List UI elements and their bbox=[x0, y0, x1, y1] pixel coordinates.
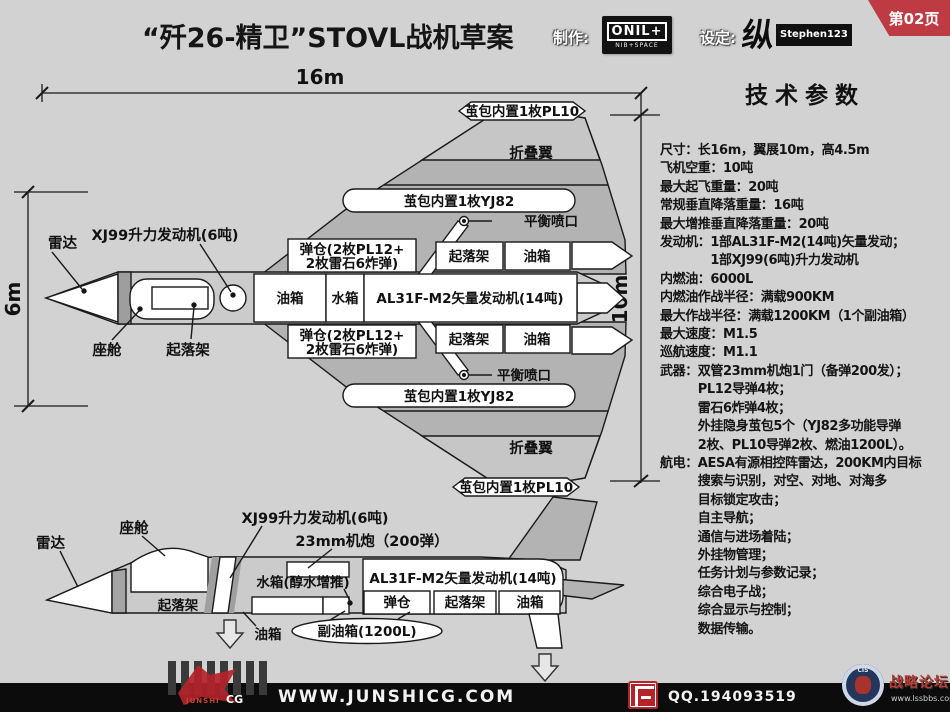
label-gun-side: 23mm机炮（200弹） bbox=[295, 532, 448, 550]
page-title: “歼26-精卫”STOVL战机草案 bbox=[142, 16, 513, 55]
label-lift-engine-side: XJ99升力发动机(6吨) bbox=[241, 509, 388, 527]
label-drop-tank: 副油箱(1200L) bbox=[317, 623, 416, 640]
spec-line: 武器：双管23mm机炮1门（备弹200发）； bbox=[660, 363, 950, 381]
lift-engine-circle bbox=[220, 285, 246, 311]
website-url: WWW.JUNSHICG.COM bbox=[278, 687, 515, 707]
main-thrust-arrow-icon bbox=[532, 654, 558, 681]
label-pod-yj82-lower: 茧包内置1枚YJ82 bbox=[404, 388, 514, 405]
qq-number: QQ.194093519 bbox=[668, 689, 797, 705]
tail-fin bbox=[508, 497, 597, 560]
canopy-side bbox=[131, 548, 208, 592]
label-balance-nozzle-upper: 平衡喷口 bbox=[524, 213, 578, 230]
label-gear-lower: 起落架 bbox=[448, 331, 490, 348]
spec-line: 内燃油：6000L bbox=[660, 271, 950, 289]
radar-nose-cone bbox=[46, 274, 118, 322]
spec-line: 综合显示与控制； bbox=[660, 602, 950, 620]
spec-line: 发动机：1部AL31F-M2(14吨)矢量发动； bbox=[660, 234, 950, 252]
spec-line: 最大作战半径：满载1200KM（1个副油箱） bbox=[660, 308, 950, 326]
dim-height-label: 6m bbox=[1, 282, 25, 317]
label-cockpit-side: 座舱 bbox=[119, 519, 149, 537]
spec-line: 最大起飞重量：20吨 bbox=[660, 179, 950, 197]
label-gear-upper: 起落架 bbox=[448, 248, 490, 265]
spec-line: 通信与进场着陆； bbox=[660, 529, 950, 547]
tech-specs-panel: 技术参数 尺寸：长16m，翼展10m，高4.5m 飞机空重：10吨 最大起飞重量… bbox=[660, 76, 950, 639]
spec-line: 巡航速度：M1.1 bbox=[660, 344, 950, 362]
spec-line: 搜索与识别，对空、对地、对海多 bbox=[660, 473, 950, 491]
label-gear-side-rear: 起落架 bbox=[444, 594, 486, 611]
spec-line: 目标锁定攻击； bbox=[660, 492, 950, 510]
spec-line: 飞机空重：10吨 bbox=[660, 160, 950, 178]
forum-emblem-icon: CIS bbox=[842, 664, 884, 706]
forum-name: 战略论坛 bbox=[889, 672, 949, 692]
spec-line: 常规垂直降落重量：16吨 bbox=[660, 197, 950, 215]
spec-line: 外挂物管理； bbox=[660, 547, 950, 565]
spec-line: 2枚、PL10导弹2枚、燃油1200L）。 bbox=[660, 437, 950, 455]
spec-line: 综合电子战； bbox=[660, 584, 950, 602]
label-fuel-side-rear: 油箱 bbox=[517, 594, 545, 611]
label-gear-front-top: 起落架 bbox=[165, 341, 210, 359]
label-pod-yj82-upper: 茧包内置1枚YJ82 bbox=[404, 193, 514, 210]
spec-line: 尺寸：长16m，翼展10m，高4.5m bbox=[660, 142, 950, 160]
label-bay-side: 弹仓 bbox=[384, 594, 411, 611]
designer-name: Stephen123 bbox=[776, 24, 852, 46]
label-balance-nozzle-lower: 平衡喷口 bbox=[497, 367, 551, 384]
specs-heading: 技术参数 bbox=[660, 76, 950, 110]
label-fuel-upper: 油箱 bbox=[524, 248, 552, 265]
lift-thrust-arrow-icon bbox=[217, 620, 243, 648]
label-water-center: 水箱 bbox=[332, 290, 359, 307]
label-main-engine-side: AL31F-M2矢量发动机(14吨) bbox=[369, 570, 556, 587]
red-seal-icon bbox=[628, 681, 658, 709]
label-pod-pl10-lower: 茧包内置1枚PL10 bbox=[459, 479, 573, 496]
label-pod-pl10-upper: 茧包内置1枚PL10 bbox=[465, 103, 579, 120]
onil-logo: ONIL+ NIB+SPACE bbox=[602, 16, 672, 54]
label-radar-side: 雷达 bbox=[36, 534, 65, 552]
junshi-logo-text: JUNSHI bbox=[186, 697, 220, 705]
label-bay-upper-2: 2枚雷石6炸弹) bbox=[306, 255, 398, 272]
label-main-engine-top: AL31F-M2矢量发动机(14吨) bbox=[376, 290, 563, 307]
forum-url: www.lssbbs.com bbox=[891, 694, 950, 703]
radar-nose-cone-side bbox=[47, 571, 112, 613]
nose-ring-side bbox=[112, 569, 126, 613]
dim-length-label: 16m bbox=[296, 65, 345, 89]
maker-label: 制作: bbox=[553, 27, 589, 48]
onil-logo-text: ONIL+ bbox=[607, 22, 668, 41]
label-fuel-side-bottom: 油箱 bbox=[255, 626, 282, 643]
emblem-cis-text: CIS bbox=[842, 667, 884, 674]
junshicg-logo: JUNSHI CG bbox=[168, 661, 268, 710]
spec-line: 航电：AESA有源相控阵雷达，200KM内目标 bbox=[660, 455, 950, 473]
label-radar-top: 雷达 bbox=[48, 234, 77, 252]
label-cockpit-top: 座舱 bbox=[92, 341, 122, 359]
vector-nozzle-flap bbox=[529, 614, 562, 648]
designer-label: 设定: bbox=[700, 27, 736, 48]
spec-line: 任务计划与参数记录； bbox=[660, 565, 950, 583]
nose-ring bbox=[118, 272, 131, 324]
spec-line: 最大增推垂直降落重量：20吨 bbox=[660, 216, 950, 234]
cockpit-frame bbox=[152, 287, 208, 309]
spec-line: 自主导航； bbox=[660, 510, 950, 528]
spec-line: 雷石6炸弹4枚； bbox=[660, 400, 950, 418]
designer-glyph: 纵 bbox=[740, 19, 775, 51]
spec-line: 内燃油作战半径：满载900KM bbox=[660, 289, 950, 307]
emblem-core bbox=[855, 676, 871, 694]
label-fuel-center: 油箱 bbox=[277, 290, 304, 307]
spec-line: 1部XJ99(6吨)升力发动机 bbox=[660, 252, 950, 270]
label-fold-wing-lower: 折叠翼 bbox=[509, 439, 553, 457]
label-fold-wing-upper: 折叠翼 bbox=[509, 144, 553, 162]
label-lift-engine-top: XJ99升力发动机(6吨) bbox=[91, 226, 238, 244]
label-gear-side-front: 起落架 bbox=[157, 597, 199, 614]
designer-logo: 纵 Stephen123 bbox=[742, 16, 826, 54]
label-water-boost-side: 水箱(醇水增推) bbox=[256, 574, 349, 591]
label-fuel-lower: 油箱 bbox=[524, 331, 552, 348]
spec-line: 数据传输。 bbox=[660, 621, 950, 639]
onil-logo-subtext: NIB+SPACE bbox=[615, 42, 658, 49]
label-bay-lower-2: 2枚雷石6炸弹) bbox=[306, 341, 398, 358]
fuel-box-side-front bbox=[252, 597, 323, 614]
spec-line: PL12导弹4枚； bbox=[660, 381, 950, 399]
cg-logo-text: CG bbox=[226, 693, 243, 706]
spec-line: 外挂隐身茧包5个（YJ82多功能导弹 bbox=[660, 418, 950, 436]
spec-line: 最大速度：M1.5 bbox=[660, 326, 950, 344]
